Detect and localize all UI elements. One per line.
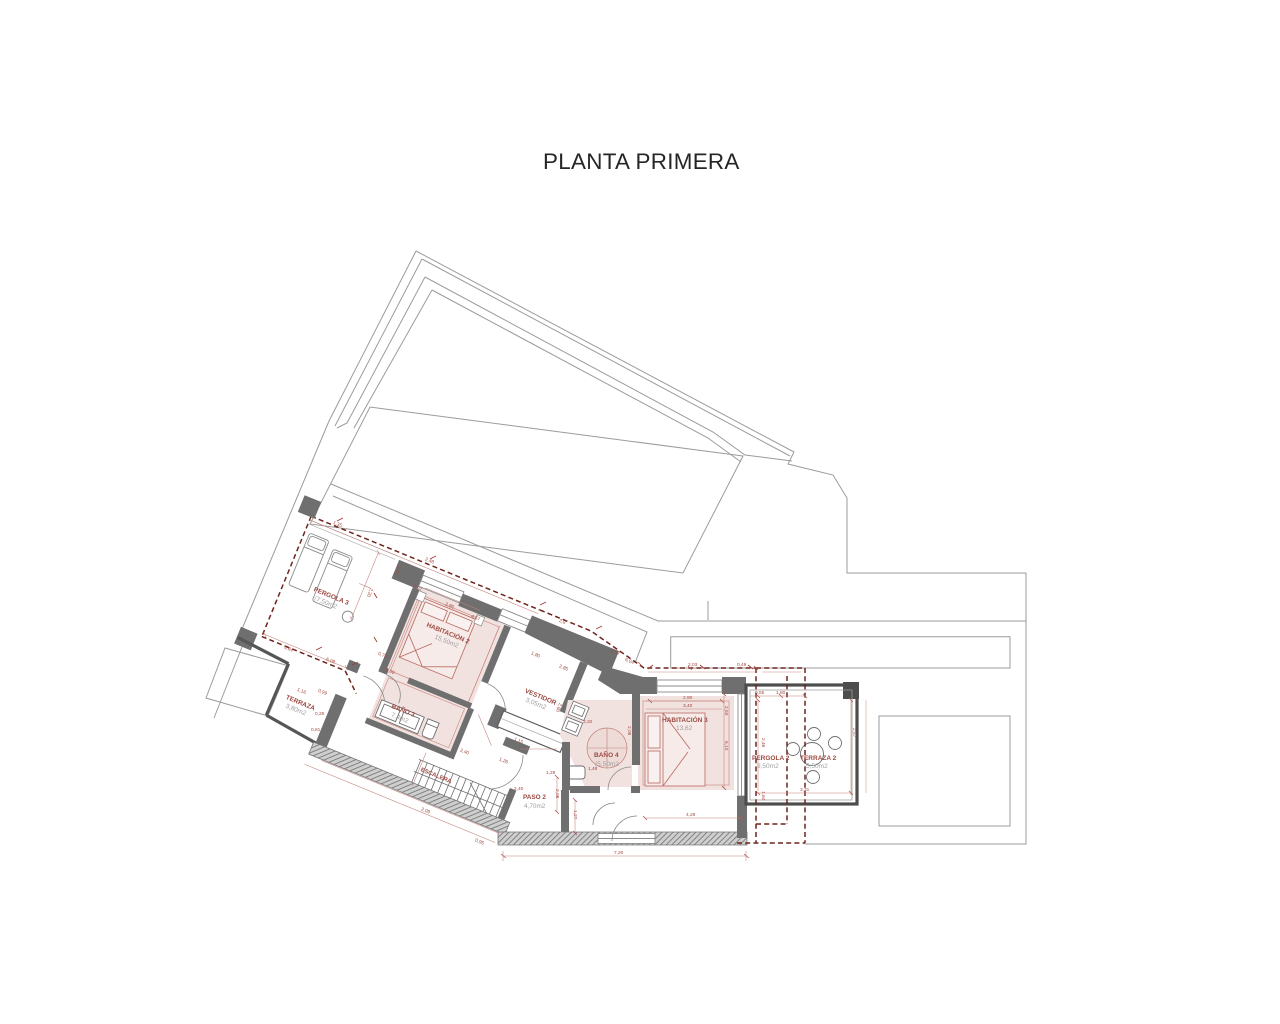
svg-text:2,40: 2,40: [514, 786, 524, 792]
svg-text:4,70m2: 4,70m2: [524, 803, 546, 810]
svg-text:5,50m2: 5,50m2: [806, 763, 828, 770]
svg-text:2,08: 2,08: [554, 789, 560, 799]
svg-text:2,48: 2,48: [424, 556, 435, 565]
svg-text:7,20: 7,20: [614, 850, 624, 856]
svg-text:1,46: 1,46: [588, 766, 598, 772]
svg-text:1,26: 1,26: [498, 756, 509, 765]
svg-text:2,90: 2,90: [683, 695, 693, 701]
svg-text:3,32: 3,32: [583, 719, 593, 725]
svg-text:2,8: 2,8: [558, 618, 567, 626]
svg-text:6,08: 6,08: [325, 656, 336, 665]
svg-text:0,95: 0,95: [474, 837, 485, 846]
svg-text:3,40: 3,40: [683, 703, 693, 709]
svg-text:2,60: 2,60: [723, 706, 729, 716]
svg-text:6,10: 6,10: [723, 741, 729, 751]
svg-text:2,20: 2,20: [365, 587, 374, 598]
svg-text:2,40: 2,40: [459, 747, 470, 756]
svg-text:HABITACIÓN 3: HABITACIÓN 3: [662, 715, 708, 724]
svg-text:0,25: 0,25: [315, 711, 325, 717]
svg-text:BAÑO 4: BAÑO 4: [594, 750, 619, 759]
svg-text:2,57: 2,57: [851, 728, 857, 738]
svg-text:(5,50m2: (5,50m2: [595, 761, 619, 768]
svg-text:13,62: 13,62: [676, 725, 693, 732]
svg-text:0,55: 0,55: [755, 690, 765, 696]
svg-text:9,50m2: 9,50m2: [757, 763, 779, 770]
svg-text:2,03: 2,03: [688, 662, 698, 668]
svg-text:1,60: 1,60: [760, 791, 766, 801]
svg-text:1,80: 1,80: [776, 690, 786, 696]
svg-text:PERGOLA 2: PERGOLA 2: [752, 755, 790, 762]
svg-text:TERRAZA 2: TERRAZA 2: [800, 755, 837, 762]
svg-text:4,28: 4,28: [686, 812, 696, 818]
svg-text:1,80: 1,80: [530, 650, 541, 659]
svg-text:ESCALERA: ESCALERA: [419, 767, 452, 785]
svg-text:2,46: 2,46: [760, 738, 766, 748]
svg-text:0,99: 0,99: [317, 688, 328, 697]
svg-text:2,09: 2,09: [420, 806, 431, 815]
svg-text:PASO 2: PASO 2: [523, 794, 546, 801]
svg-text:1,16: 1,16: [296, 687, 307, 696]
svg-text:3,31: 3,31: [800, 787, 810, 793]
svg-text:2,08: 2,08: [626, 726, 632, 736]
svg-text:1,27: 1,27: [572, 810, 578, 820]
svg-text:PLANTA PRIMERA: PLANTA PRIMERA: [543, 149, 740, 174]
svg-text:1,28: 1,28: [546, 770, 556, 776]
svg-text:0,49: 0,49: [737, 662, 747, 668]
svg-text:2,85: 2,85: [558, 663, 569, 672]
svg-text:0,81: 0,81: [311, 727, 321, 733]
